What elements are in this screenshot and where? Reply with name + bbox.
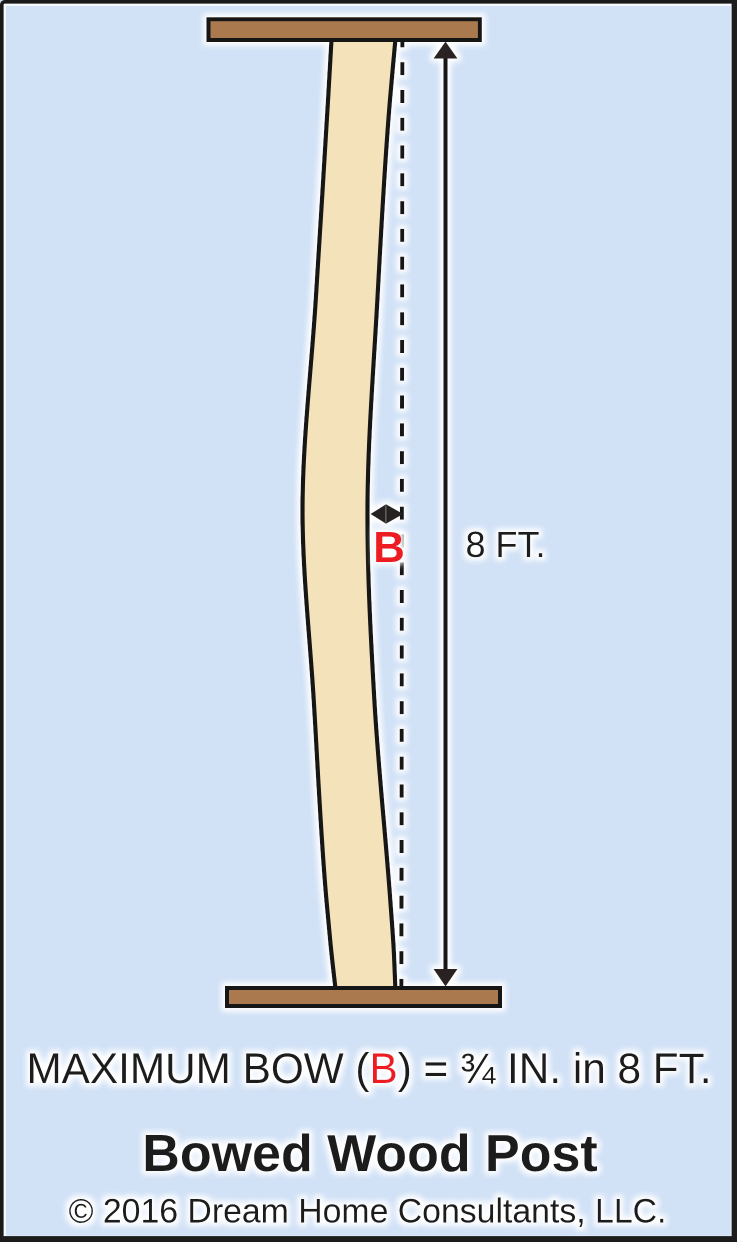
svg-text:B: B bbox=[373, 523, 405, 572]
svg-text:© 2016 Dream Home Consultants,: © 2016 Dream Home Consultants, LLC. bbox=[69, 1193, 667, 1231]
svg-text:Bowed Wood Post: Bowed Wood Post bbox=[142, 1125, 597, 1183]
svg-text:MAXIMUM BOW (B) = ¾ IN. in 8 F: MAXIMUM BOW (B) = ¾ IN. in 8 FT. bbox=[26, 1045, 711, 1092]
svg-text:8 FT.: 8 FT. bbox=[466, 524, 546, 565]
